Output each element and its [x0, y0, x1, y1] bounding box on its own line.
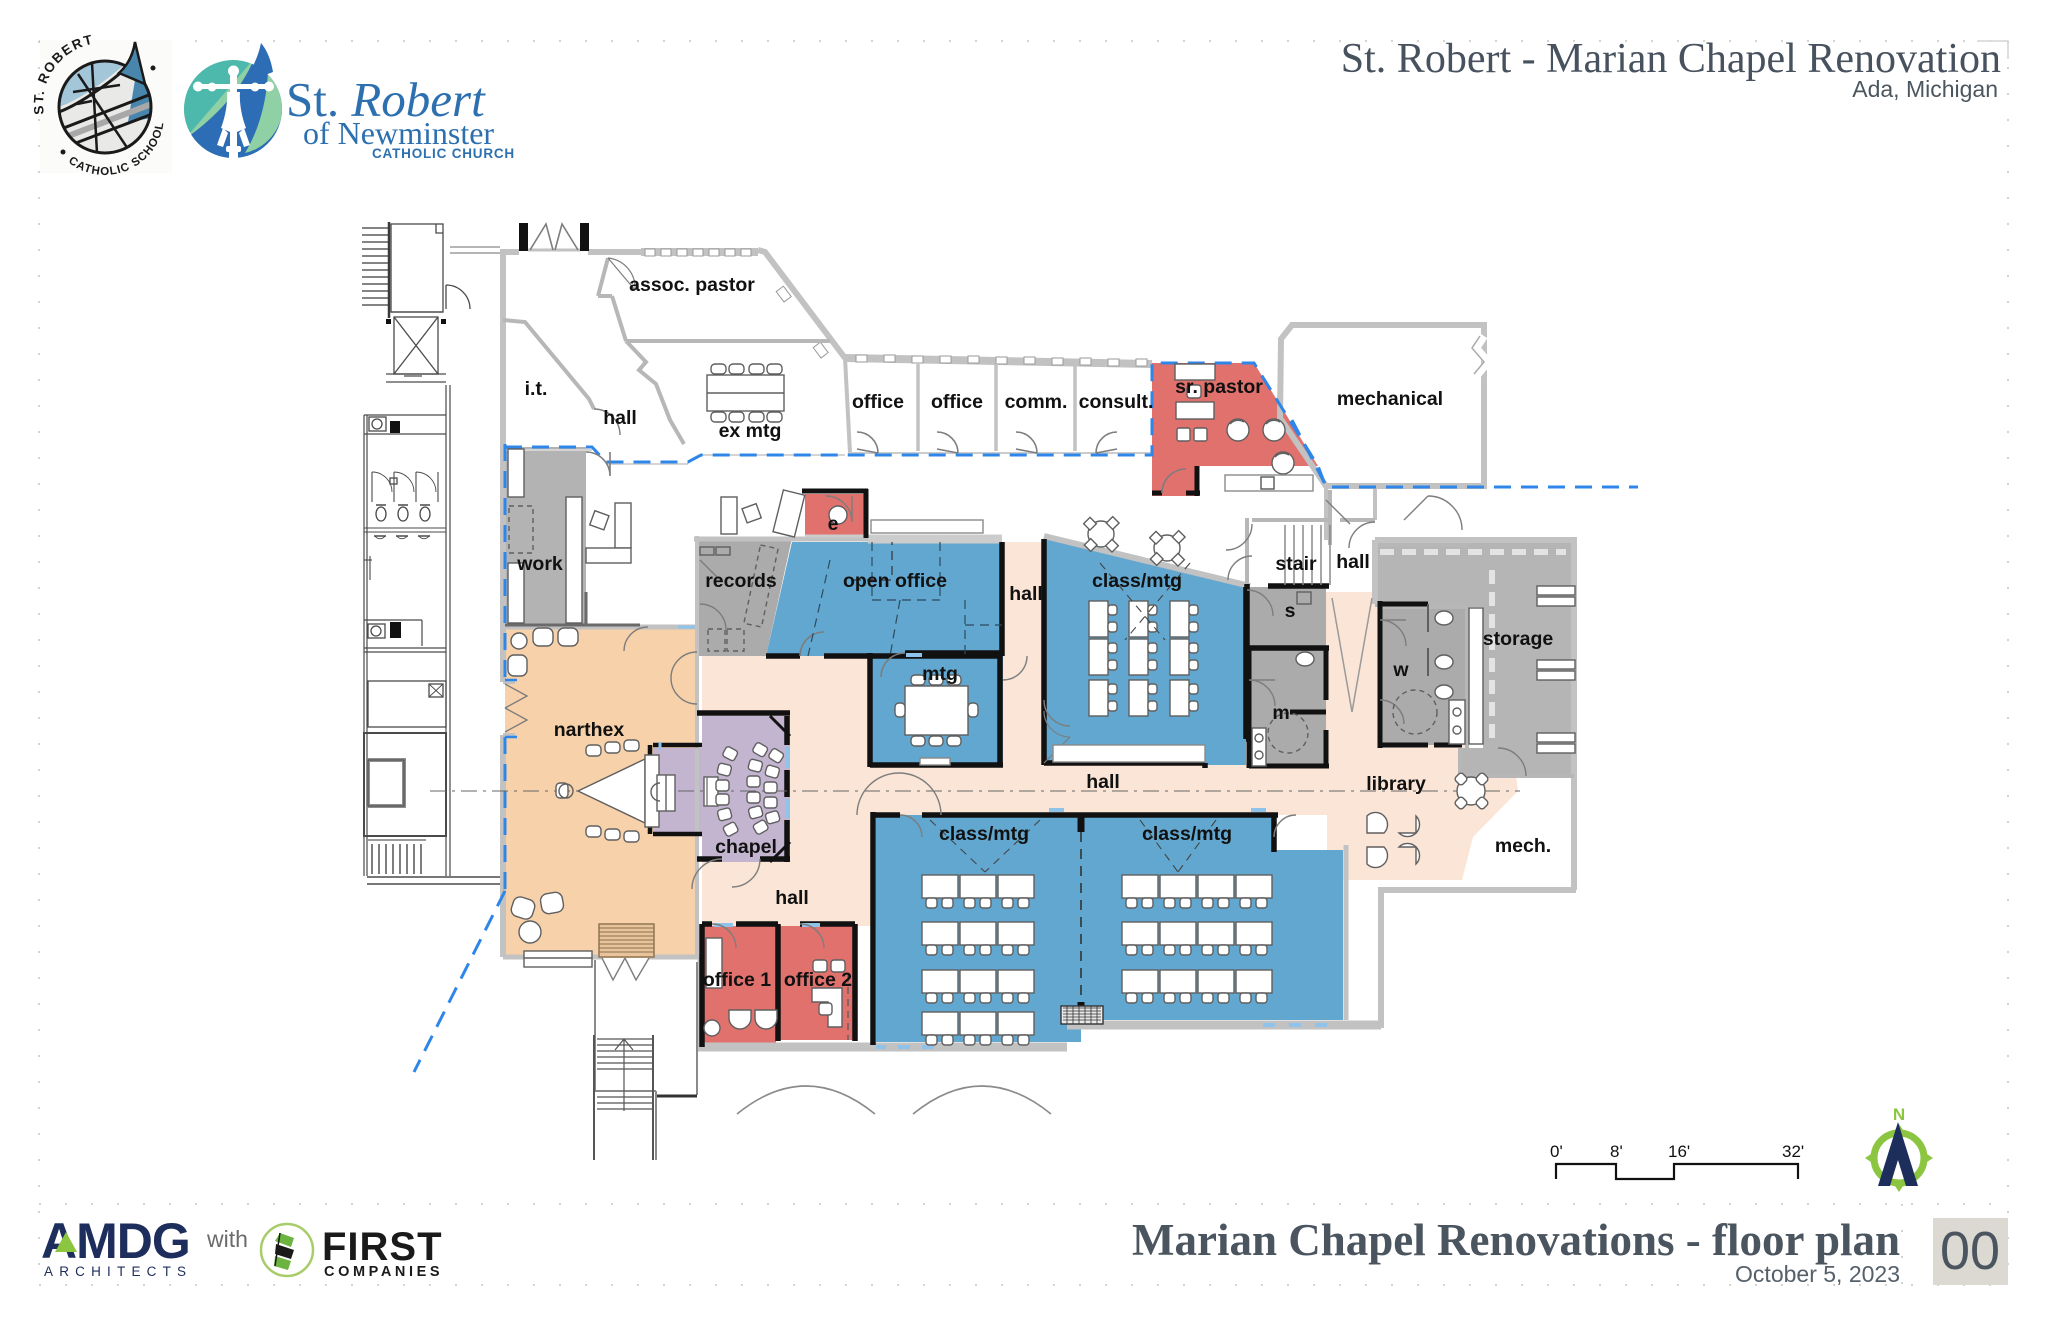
svg-text:comm.: comm.: [1005, 391, 1068, 413]
svg-text:mechanical: mechanical: [1337, 388, 1443, 410]
svg-text:ARCHITECTS: ARCHITECTS: [44, 1264, 192, 1279]
svg-text:library: library: [1366, 773, 1426, 795]
svg-text:assoc. pastor: assoc. pastor: [629, 274, 755, 296]
svg-text:class/mtg: class/mtg: [1142, 823, 1232, 845]
svg-text:stair: stair: [1275, 553, 1317, 575]
svg-text:class/mtg: class/mtg: [939, 823, 1029, 845]
svg-text:0': 0': [1550, 1142, 1563, 1161]
svg-text:hall: hall: [1336, 551, 1370, 573]
svg-text:ex mtg: ex mtg: [719, 420, 782, 442]
svg-text:FIRST: FIRST: [322, 1225, 443, 1269]
svg-text:office 2: office 2: [784, 969, 852, 991]
svg-text:class/mtg: class/mtg: [1092, 570, 1182, 592]
svg-text:s: s: [1285, 600, 1296, 622]
svg-text:N: N: [1893, 1105, 1905, 1124]
svg-text:chapel: chapel: [715, 836, 777, 858]
svg-text:e: e: [828, 513, 839, 535]
svg-text:consult.: consult.: [1079, 391, 1154, 413]
svg-text:m: m: [1272, 702, 1289, 724]
svg-text:8': 8': [1610, 1142, 1623, 1161]
svg-text:mech.: mech.: [1495, 835, 1551, 857]
svg-text:storage: storage: [1483, 628, 1554, 650]
svg-text:00: 00: [1940, 1221, 2000, 1281]
svg-text:office: office: [931, 391, 983, 413]
svg-text:w: w: [1392, 659, 1409, 681]
svg-text:hall: hall: [603, 407, 637, 429]
svg-text:office 1: office 1: [703, 969, 771, 991]
svg-text:open office: open office: [843, 570, 947, 592]
svg-text:CATHOLIC CHURCH: CATHOLIC CHURCH: [372, 146, 515, 161]
svg-text:sr. pastor: sr. pastor: [1175, 376, 1263, 398]
svg-text:Ada, Michigan: Ada, Michigan: [1852, 76, 1998, 102]
svg-text:with: with: [206, 1226, 248, 1252]
svg-text:work: work: [516, 553, 563, 575]
svg-text:COMPANIES: COMPANIES: [324, 1264, 443, 1280]
svg-text:32': 32': [1782, 1142, 1804, 1161]
svg-text:mtg: mtg: [922, 663, 958, 685]
svg-text:office: office: [852, 391, 904, 413]
svg-text:i.t.: i.t.: [525, 378, 548, 400]
svg-text:hall: hall: [1009, 583, 1043, 605]
svg-text:Marian Chapel Renovations - fl: Marian Chapel Renovations - floor plan: [1132, 1215, 1900, 1265]
svg-text:records: records: [705, 570, 777, 592]
svg-text:16': 16': [1668, 1142, 1690, 1161]
svg-text:narthex: narthex: [554, 719, 625, 741]
svg-text:hall: hall: [1086, 771, 1120, 793]
svg-text:October 5, 2023: October 5, 2023: [1735, 1261, 1900, 1287]
svg-text:hall: hall: [775, 887, 809, 909]
